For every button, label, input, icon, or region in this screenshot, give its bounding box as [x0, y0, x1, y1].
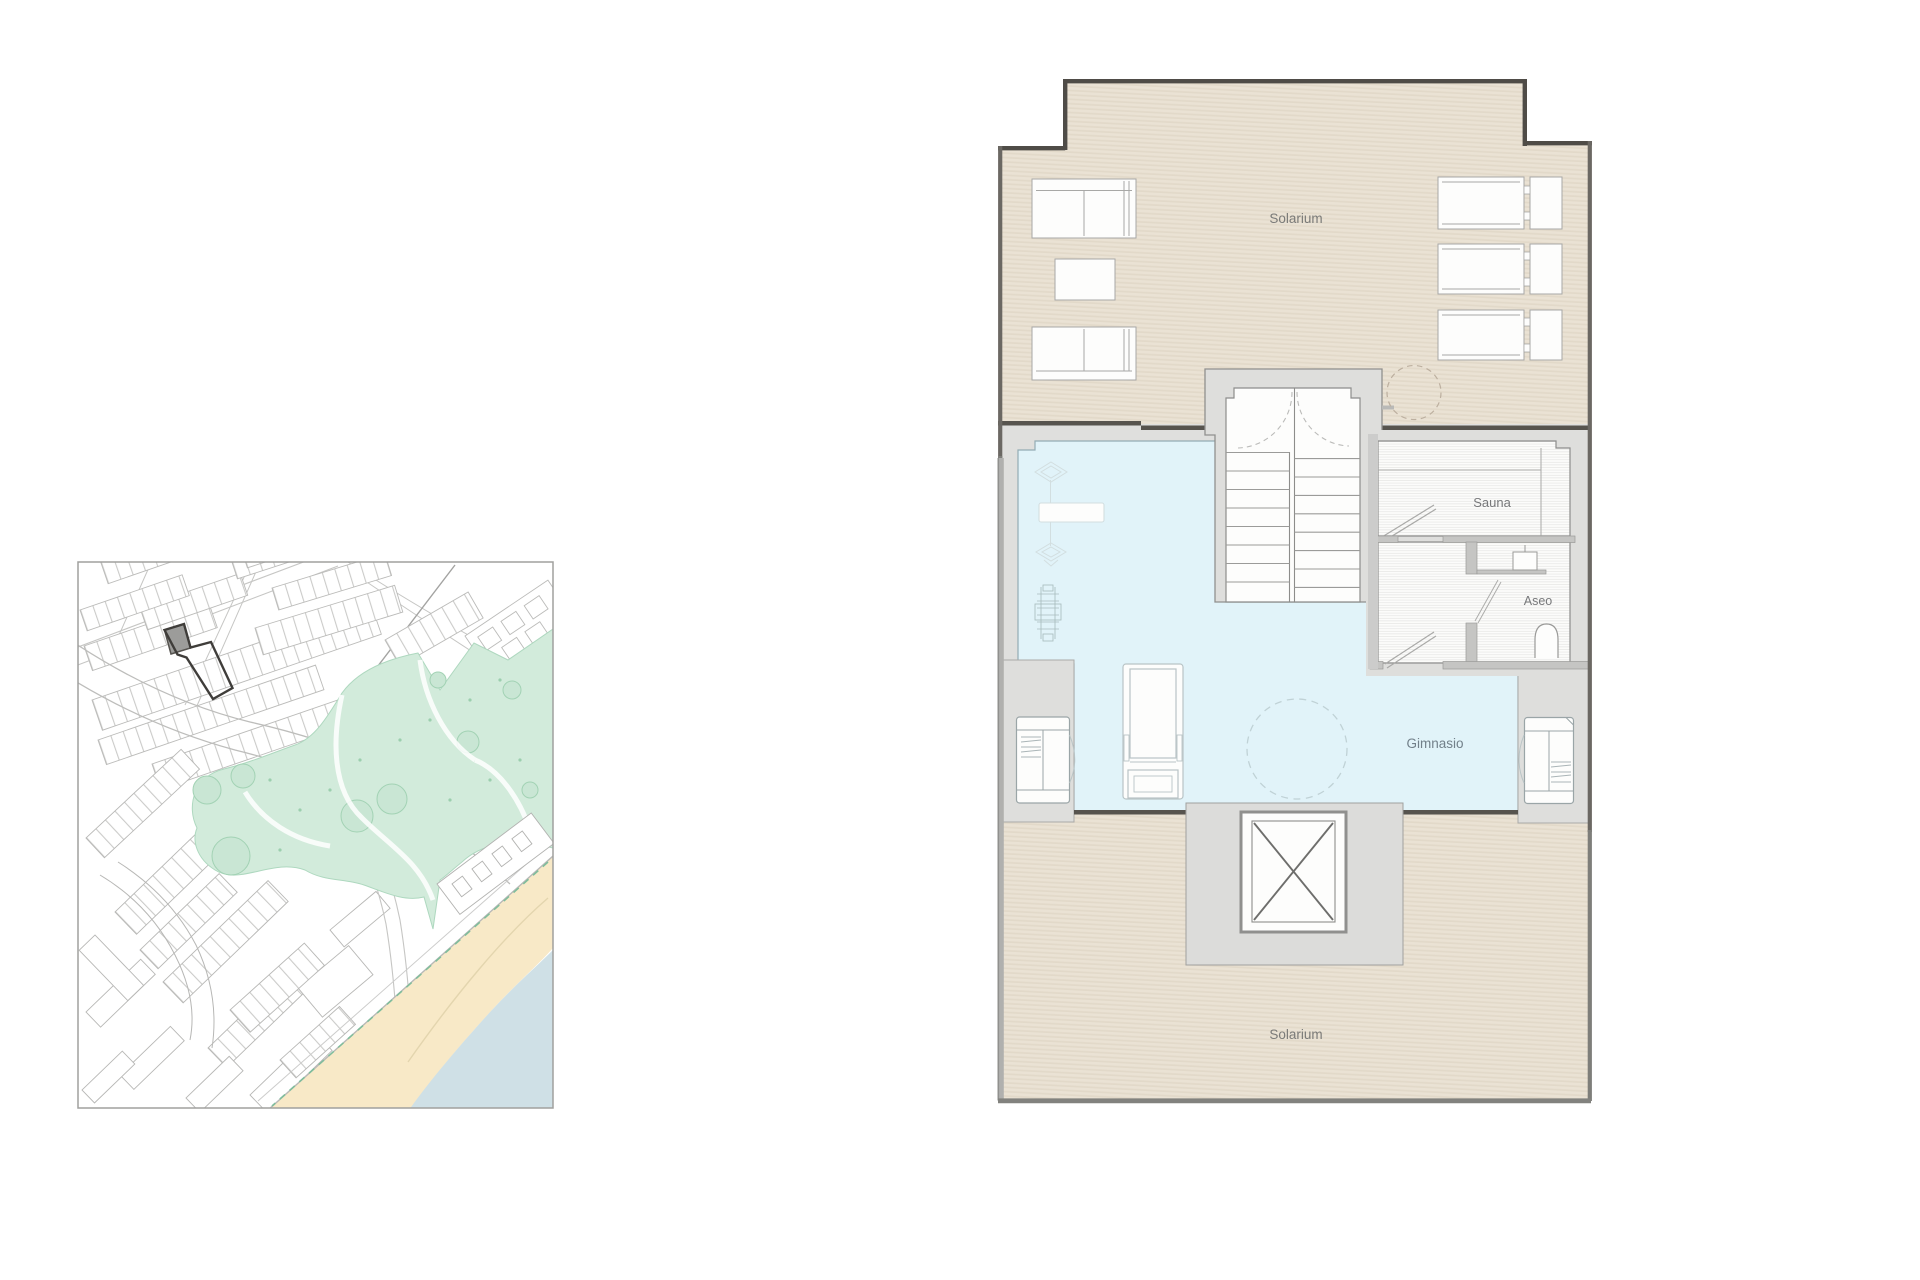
svg-text:Solarium: Solarium: [1269, 1027, 1322, 1042]
svg-text:Solarium: Solarium: [1269, 211, 1322, 226]
svg-text:Gimnasio: Gimnasio: [1406, 736, 1463, 751]
svg-text:Aseo: Aseo: [1524, 594, 1553, 608]
svg-text:Sauna: Sauna: [1473, 495, 1511, 510]
